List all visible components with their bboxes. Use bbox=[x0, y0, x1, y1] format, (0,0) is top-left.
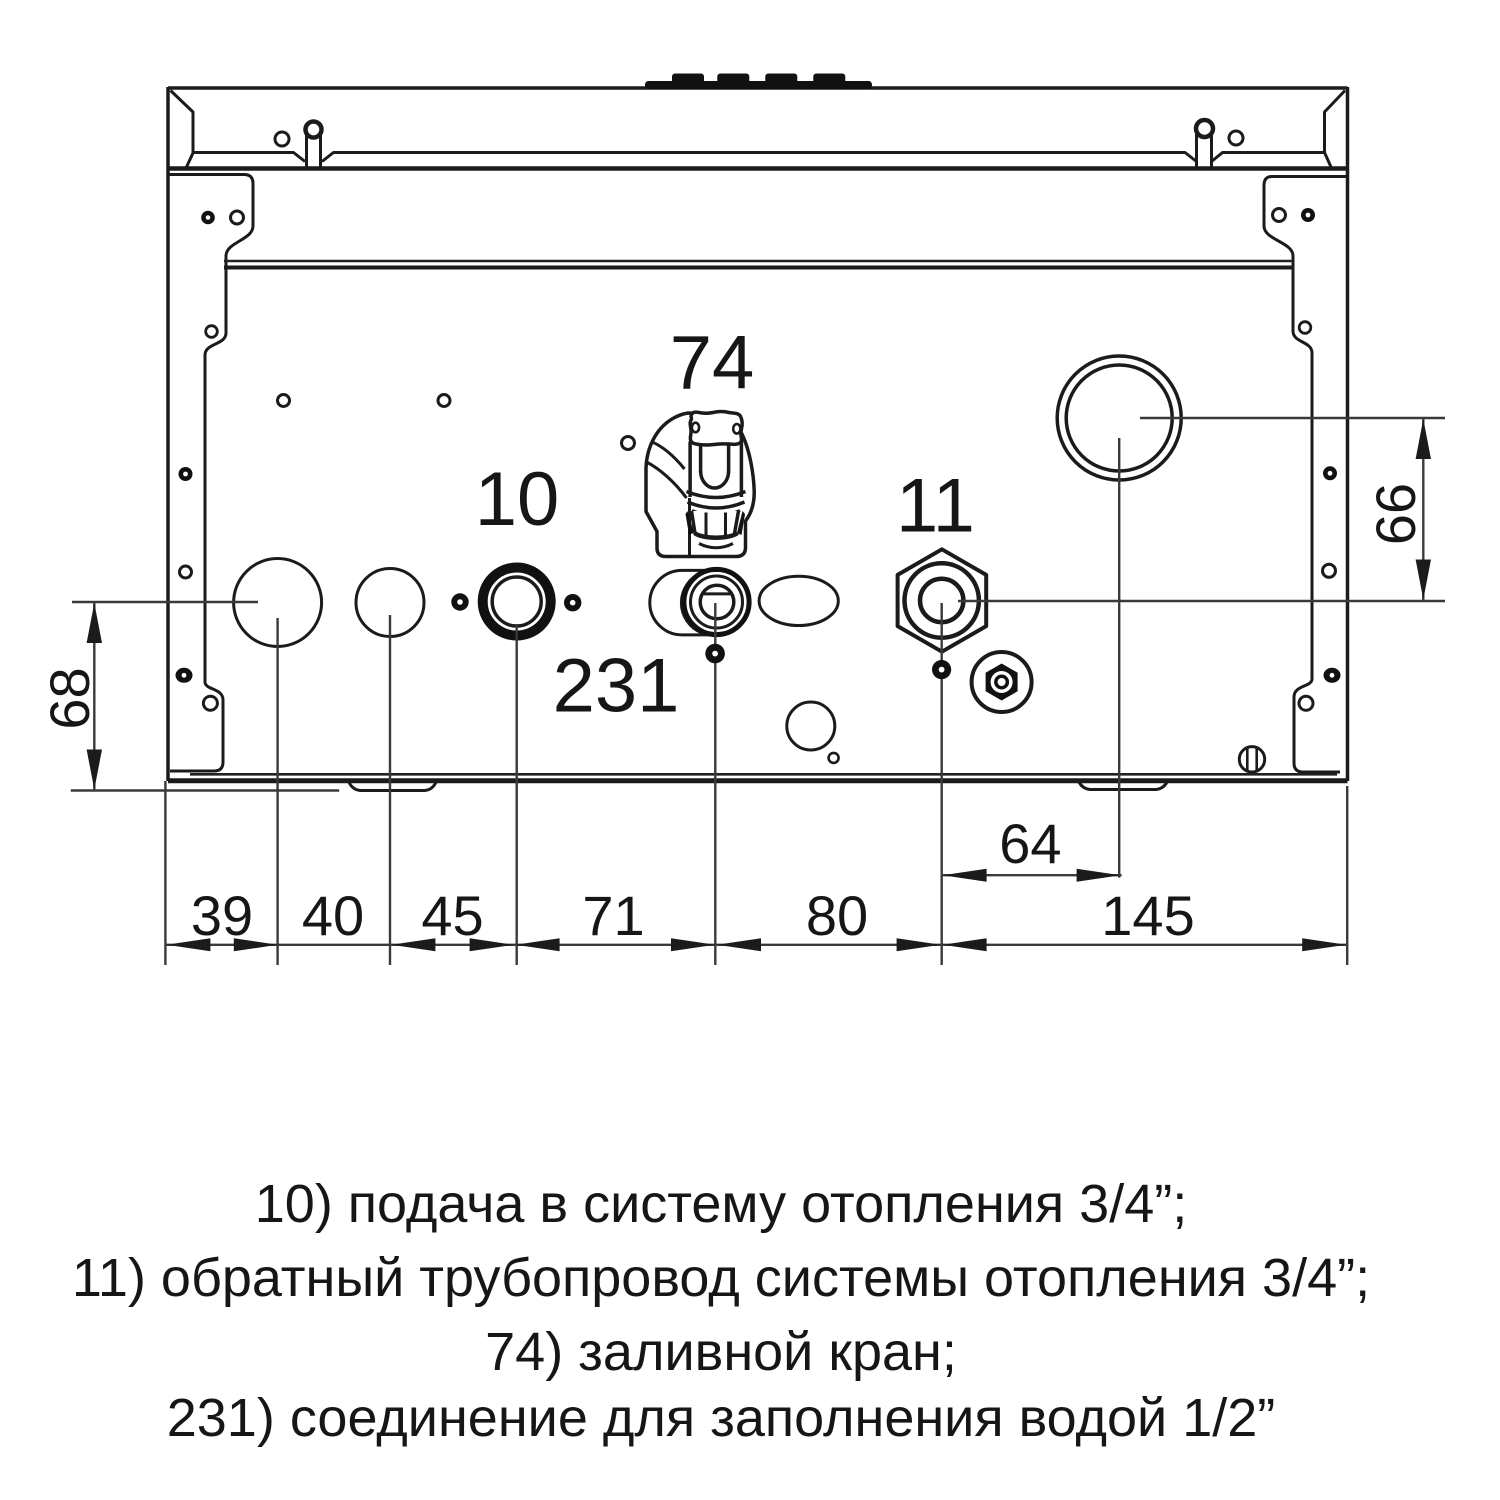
svg-text:74: 74 bbox=[670, 320, 755, 405]
svg-text:71: 71 bbox=[582, 884, 644, 947]
svg-text:45: 45 bbox=[421, 884, 483, 947]
svg-text:68: 68 bbox=[38, 667, 101, 729]
svg-text:10: 10 bbox=[475, 457, 560, 542]
svg-text:80: 80 bbox=[806, 884, 868, 947]
svg-text:231: 231 bbox=[553, 644, 680, 729]
svg-text:231) соединение для заполнения: 231) соединение для заполнения водой 1/2… bbox=[167, 1388, 1276, 1448]
svg-text:145: 145 bbox=[1101, 884, 1194, 947]
svg-text:40: 40 bbox=[302, 884, 364, 947]
svg-text:11: 11 bbox=[896, 464, 975, 549]
svg-text:11) обратный трубопровод систе: 11) обратный трубопровод системы отоплен… bbox=[72, 1248, 1370, 1308]
svg-text:10) подача в систему отопления: 10) подача в систему отопления 3/4”; bbox=[255, 1174, 1187, 1234]
svg-text:64: 64 bbox=[999, 812, 1061, 875]
svg-text:66: 66 bbox=[1364, 483, 1427, 545]
svg-text:39: 39 bbox=[191, 884, 253, 947]
svg-text:74) заливной кран;: 74) заливной кран; bbox=[485, 1322, 957, 1382]
